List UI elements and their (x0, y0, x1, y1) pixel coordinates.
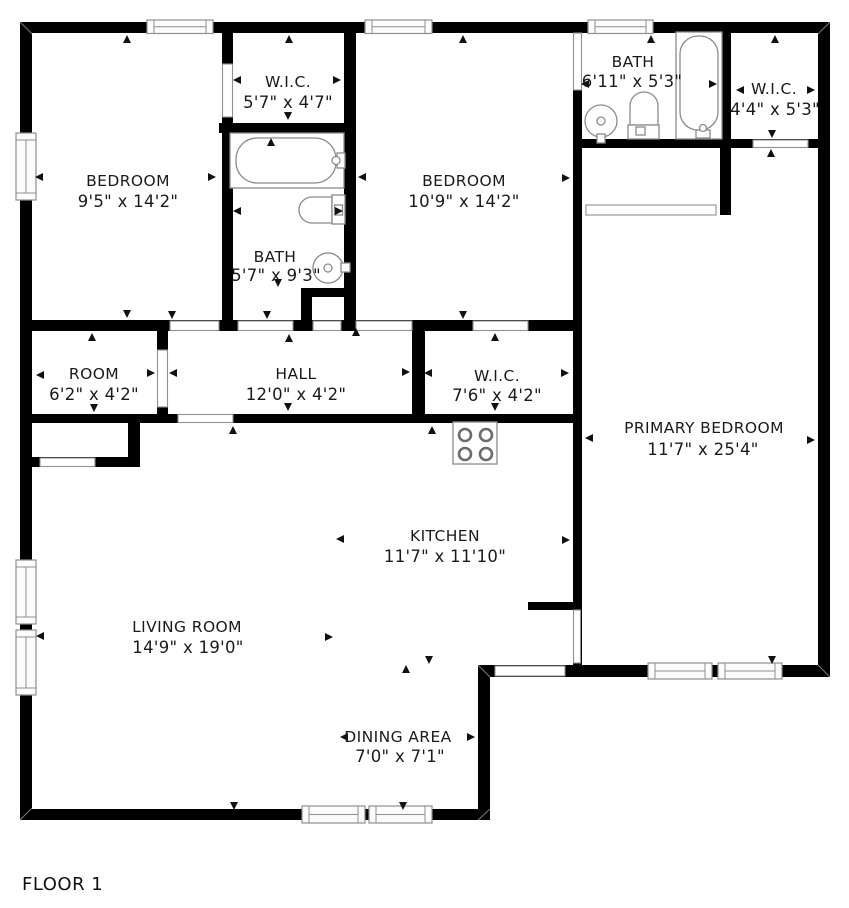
closet-opening (313, 321, 341, 331)
window (588, 20, 653, 34)
window (16, 630, 36, 695)
room-name: PRIMARY BEDROOM (624, 419, 784, 437)
door-opening (223, 64, 233, 117)
sink (585, 105, 617, 143)
bathtub (676, 32, 722, 139)
room-dims: 4'4" x 5'3" (730, 100, 820, 119)
room-name: ROOM (69, 365, 119, 383)
bathtub (230, 133, 345, 188)
room-label-bedroom-2: BEDROOM 10'9" x 14'2" (408, 172, 519, 211)
room-name: BEDROOM (422, 172, 506, 190)
room-dims: 14'9" x 19'0" (132, 638, 243, 657)
room-label-wic-1: W.I.C. 5'7" x 4'7" (243, 73, 333, 112)
room-name: KITCHEN (410, 527, 480, 545)
window (16, 560, 36, 624)
room-dims: 5'7" x 4'7" (243, 93, 333, 112)
room-label-room: ROOM 6'2" x 4'2" (49, 365, 139, 404)
room-dims: 7'0" x 7'1" (355, 747, 445, 766)
floor-title: FLOOR 1 (22, 874, 103, 895)
room-name: BEDROOM (86, 172, 170, 190)
door-opening (574, 33, 582, 90)
room-label-kitchen: KITCHEN 11'7" x 11'10" (384, 527, 506, 566)
room-name: LIVING ROOM (132, 618, 242, 636)
room-dims: 6'11" x 5'3" (582, 72, 683, 91)
room-name: W.I.C. (265, 73, 311, 91)
room-label-primary-bedroom: PRIMARY BEDROOM 11'7" x 25'4" (624, 419, 784, 459)
hall-passage-opening (178, 415, 233, 423)
door-opening (356, 321, 412, 331)
room-name: DINING AREA (344, 728, 451, 746)
floor-plan-page: BEDROOM 9'5" x 14'2" W.I.C. 5'7" x 4'7" … (0, 0, 849, 908)
window (365, 20, 432, 34)
door-opening (574, 610, 581, 663)
room-name: W.I.C. (474, 367, 520, 385)
room-name: BATH (254, 248, 297, 266)
room-label-living-room: LIVING ROOM 14'9" x 19'0" (132, 618, 244, 657)
door-opening (238, 321, 293, 331)
window (16, 133, 36, 200)
room-dims: 10'9" x 14'2" (408, 192, 519, 211)
door-opening (473, 321, 528, 331)
window (147, 20, 213, 34)
window (302, 806, 365, 823)
entry-door-opening (495, 666, 565, 676)
room-label-bath-2: BATH 5'7" x 9'3" (231, 248, 321, 285)
door-opening (170, 321, 219, 331)
sliding-closet-door (586, 205, 716, 215)
window (648, 663, 712, 679)
room-label-bath-1: BATH 6'11" x 5'3" (582, 53, 683, 91)
window (369, 806, 432, 823)
stove-cooktop (453, 422, 497, 464)
closet-opening (753, 140, 808, 148)
room-dims: 6'2" x 4'2" (49, 385, 139, 404)
room-dims: 11'7" x 25'4" (647, 440, 758, 459)
room-name: HALL (275, 365, 316, 383)
window (718, 663, 782, 679)
room-label-wic-2: W.I.C. 7'6" x 4'2" (452, 367, 542, 405)
closet-opening (40, 458, 95, 467)
room-label-bedroom-1: BEDROOM 9'5" x 14'2" (78, 172, 179, 211)
room-dims: 7'6" x 4'2" (452, 386, 542, 405)
room-name: BATH (612, 53, 655, 71)
room-label-hall: HALL 12'0" x 4'2" (246, 365, 347, 404)
room-label-wic-3: W.I.C. 4'4" x 5'3" (730, 80, 820, 119)
room-dims: 5'7" x 9'3" (231, 266, 321, 285)
room-dims: 11'7" x 11'10" (384, 547, 506, 566)
room-name: W.I.C. (751, 80, 797, 98)
floor-plan-canvas: BEDROOM 9'5" x 14'2" W.I.C. 5'7" x 4'7" … (0, 0, 849, 908)
room-label-dining-area: DINING AREA 7'0" x 7'1" (344, 728, 451, 766)
room-dims: 9'5" x 14'2" (78, 192, 179, 211)
room-dims: 12'0" x 4'2" (246, 385, 347, 404)
toilet (628, 92, 659, 139)
door-opening (158, 350, 168, 407)
